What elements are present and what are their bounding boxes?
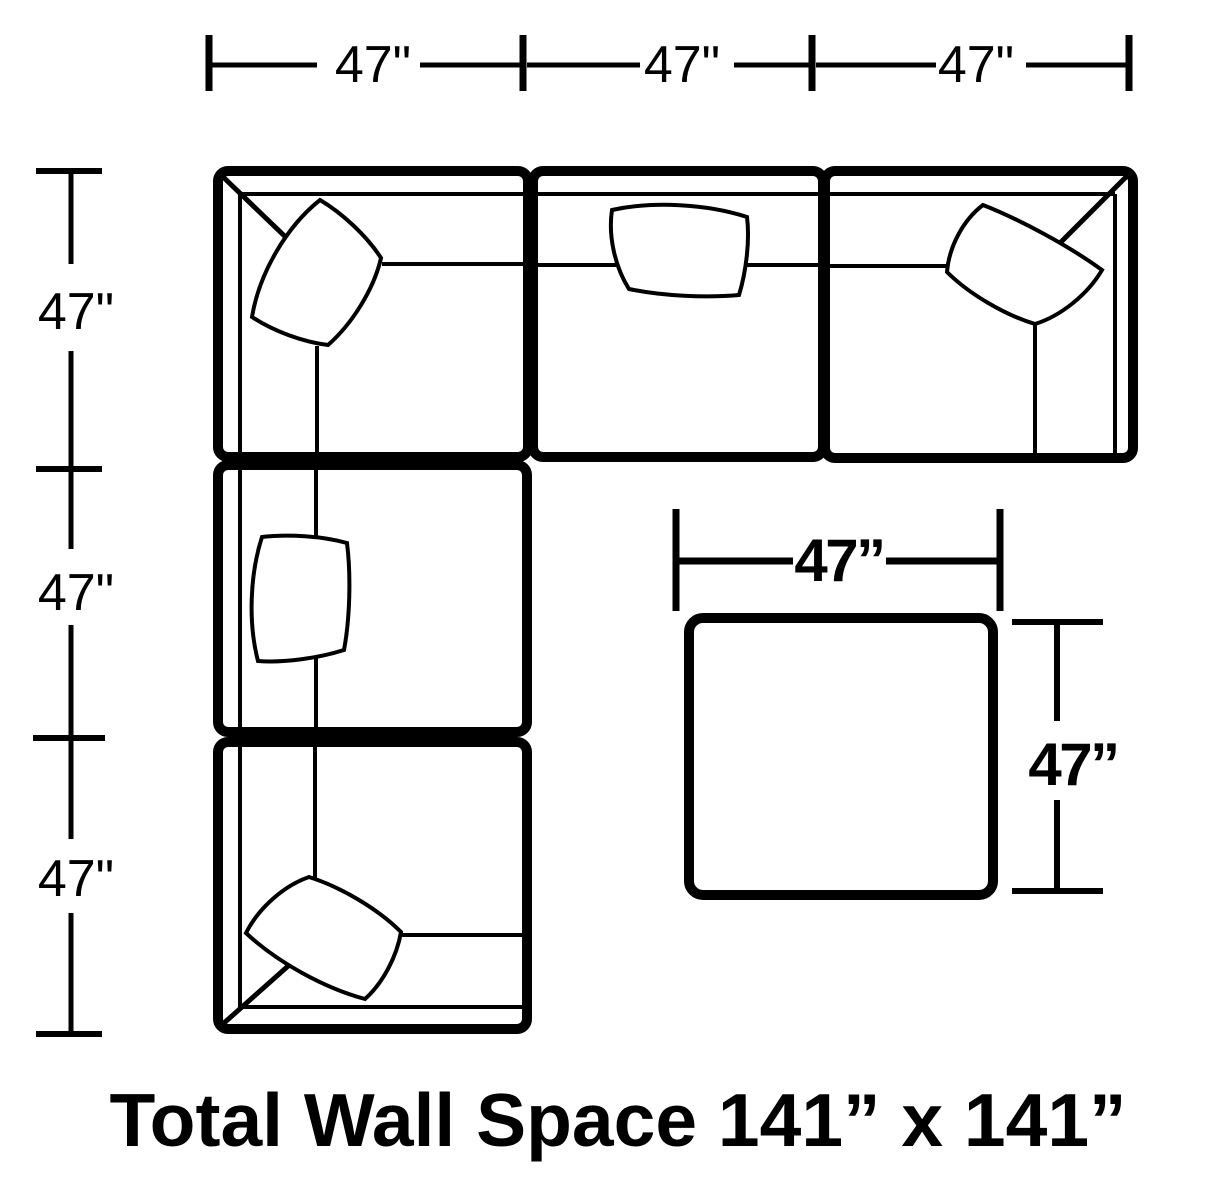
svg-text:47”: 47” [794, 527, 883, 594]
svg-text:47": 47" [335, 36, 411, 94]
svg-text:47": 47" [38, 564, 114, 622]
svg-text:47": 47" [38, 283, 114, 341]
svg-text:47”: 47” [1028, 731, 1117, 798]
svg-text:47": 47" [644, 36, 720, 94]
svg-text:47": 47" [938, 36, 1014, 94]
svg-text:Total Wall Space 141” x 141”: Total Wall Space 141” x 141” [109, 1078, 1126, 1162]
svg-text:47": 47" [38, 850, 114, 908]
